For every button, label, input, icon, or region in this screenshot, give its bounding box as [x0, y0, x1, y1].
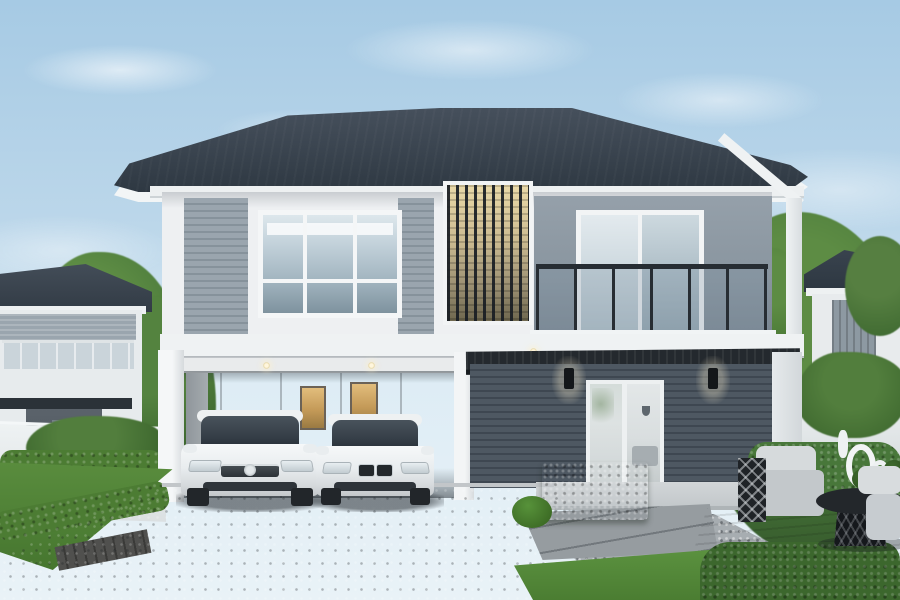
neighbor-left-awning	[0, 398, 132, 409]
car-kidney-grille	[358, 464, 375, 477]
upper-siding-right-of-window	[398, 198, 434, 338]
wall-sconce	[564, 368, 574, 389]
entry-door-reflection	[592, 388, 614, 428]
car-bumper	[334, 482, 416, 491]
upper-picture-window	[258, 210, 402, 318]
window-transom	[263, 279, 397, 283]
sofa-ottoman-right	[866, 494, 900, 540]
upper-corner-column	[786, 198, 802, 344]
lattice-side-table	[738, 458, 766, 522]
car-wheel	[187, 488, 209, 506]
white-vase	[838, 430, 848, 458]
neighbor-left-siding-band	[0, 314, 136, 340]
car-headlight	[280, 460, 314, 472]
car-wheel	[321, 488, 341, 505]
armchair-seat	[760, 470, 824, 516]
slat-bars	[447, 185, 529, 321]
neighbor-left-balcony-railing	[2, 340, 134, 369]
downlight	[368, 362, 375, 369]
white-sedan-left	[181, 398, 321, 510]
window-interior-reflection	[267, 223, 393, 235]
car-wheel	[291, 488, 313, 506]
upper-siding-left	[184, 198, 248, 338]
car-kidney-grille	[376, 464, 393, 477]
wall-sconce	[708, 368, 718, 389]
white-sedan-right	[316, 404, 436, 510]
sofa-cushion-right	[858, 466, 900, 494]
window-mullion	[353, 215, 357, 313]
car-mirror	[303, 444, 317, 453]
balcony-glass-railing	[536, 264, 768, 334]
car-mirror	[183, 444, 197, 453]
car-mirror	[421, 446, 434, 455]
car-headlight	[400, 462, 430, 474]
car-mirror	[316, 446, 329, 455]
hedge-ball	[512, 496, 552, 528]
car-headlight	[188, 460, 222, 472]
car-emblem	[244, 464, 256, 476]
car-wheel	[410, 488, 430, 505]
house-exterior-render	[0, 0, 900, 600]
downlight	[263, 362, 270, 369]
box-hedge	[542, 462, 648, 520]
interior-pendant-lamp	[642, 406, 650, 416]
window-mullion	[303, 215, 307, 313]
car-headlight	[322, 462, 352, 474]
vertical-slat-screen	[443, 181, 533, 325]
car-bumper	[203, 482, 297, 491]
foliage-over-right-fence	[796, 352, 900, 438]
